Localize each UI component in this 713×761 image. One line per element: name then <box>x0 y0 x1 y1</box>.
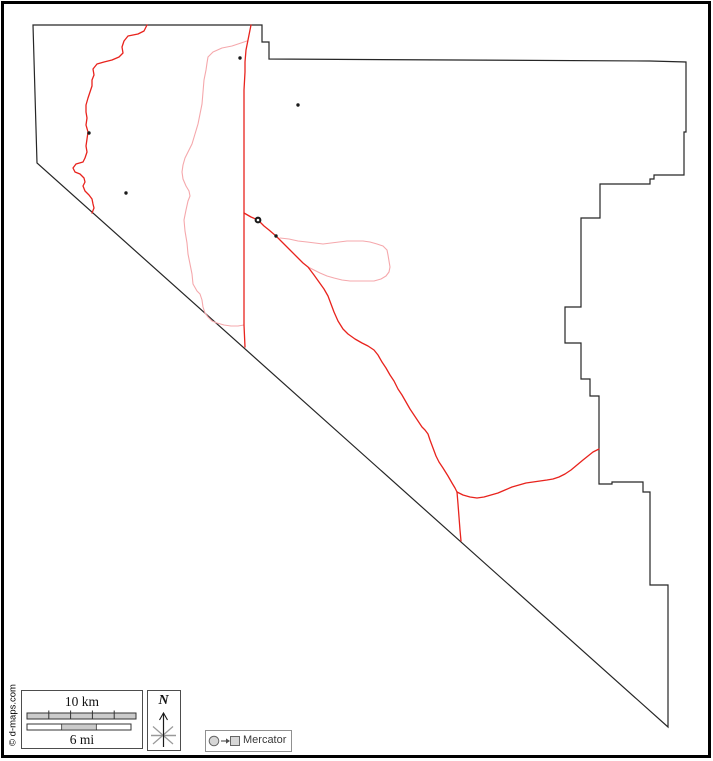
globe-circle-icon <box>209 736 219 746</box>
mi-bar-filled-segment <box>62 724 97 730</box>
county-seat-marker <box>256 218 261 223</box>
image-frame <box>3 3 710 757</box>
road-layer <box>73 25 599 541</box>
town-layer <box>87 56 299 237</box>
west-river <box>182 41 247 326</box>
east-branch-road <box>457 449 599 498</box>
map-image: 10 km 6 mi N Mercator © d-maps.com <box>0 0 713 761</box>
km-bar <box>27 713 136 719</box>
county-outline <box>33 25 686 727</box>
county-outline-layer <box>33 25 686 727</box>
town-dot <box>296 103 299 106</box>
county-seat-layer <box>256 218 261 223</box>
south-branch-road <box>457 492 461 541</box>
town-dot <box>238 56 241 59</box>
southeast-road <box>244 213 457 492</box>
north-south-road <box>244 25 251 347</box>
east-loop-river <box>280 238 390 281</box>
frame-layer <box>3 3 710 757</box>
west-wavy-road <box>73 25 147 213</box>
town-dot <box>274 234 277 237</box>
town-dot <box>124 191 127 194</box>
scalebar-graphics <box>22 691 143 749</box>
river-layer <box>182 41 390 326</box>
town-dot <box>87 131 90 134</box>
north-arrow-graphics <box>148 691 181 751</box>
map-canvas <box>0 0 713 761</box>
flat-map-square-icon <box>231 737 240 746</box>
legend-graphics <box>206 731 292 752</box>
